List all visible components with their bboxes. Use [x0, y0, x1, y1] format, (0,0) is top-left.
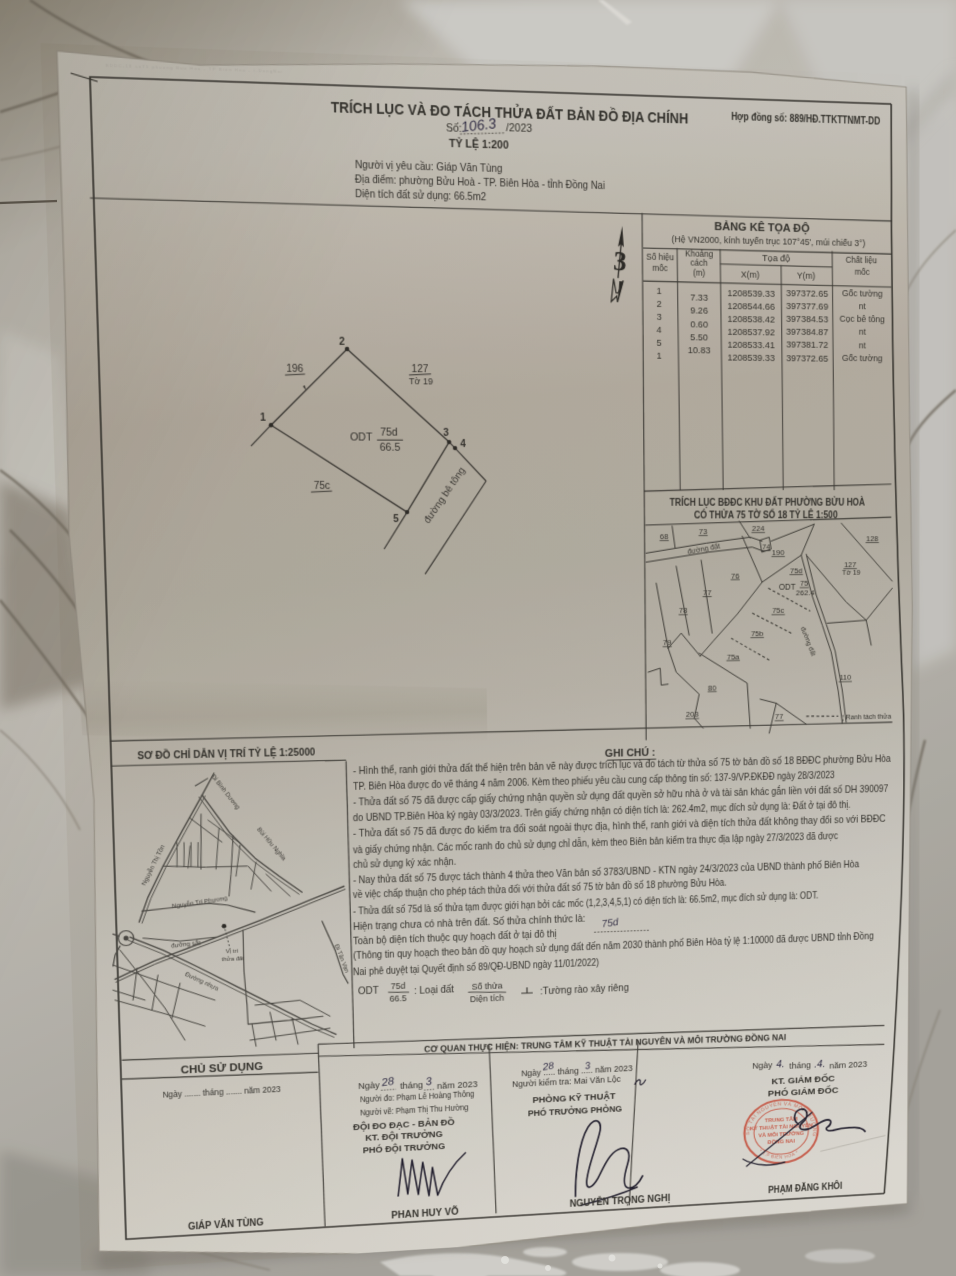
svg-text:5: 5	[657, 339, 662, 349]
svg-text:0.60: 0.60	[690, 320, 708, 330]
svg-text:4.: 4.	[776, 1058, 784, 1070]
svg-text:tháng: tháng	[789, 1061, 811, 1071]
svg-text:127: 127	[844, 560, 857, 569]
svg-text:Y(m): Y(m)	[797, 272, 815, 282]
svg-text:66.5: 66.5	[380, 443, 401, 454]
svg-text:3: 3	[657, 313, 662, 323]
svg-text:1208544.66: 1208544.66	[727, 301, 775, 312]
svg-text:TỶ LỆ 1:200: TỶ LỆ 1:200	[449, 137, 509, 151]
svg-text:mốc: mốc	[855, 268, 870, 277]
svg-text:397377.69: 397377.69	[786, 301, 828, 312]
svg-text:1208539.33: 1208539.33	[727, 288, 775, 299]
svg-text:1208533.41: 1208533.41	[727, 340, 775, 351]
svg-text:224: 224	[752, 524, 765, 533]
svg-text:ODT: ODT	[779, 583, 796, 592]
svg-text:Gốc tường: Gốc tường	[842, 354, 882, 364]
svg-text:4: 4	[657, 326, 662, 336]
svg-text:1208537.92: 1208537.92	[727, 327, 775, 338]
svg-text:397381.72: 397381.72	[786, 341, 828, 352]
svg-text:4: 4	[460, 439, 466, 450]
svg-text:mốc: mốc	[652, 263, 668, 273]
svg-text:Số:: Số:	[446, 122, 462, 134]
svg-text:66.5: 66.5	[389, 994, 406, 1004]
svg-text:75a: 75a	[727, 652, 740, 661]
svg-text:196: 196	[286, 363, 303, 375]
svg-text:1208538.42: 1208538.42	[727, 314, 775, 325]
svg-text:75b: 75b	[751, 629, 764, 638]
svg-text:190: 190	[772, 548, 785, 557]
svg-text:TRÍCH LỤC BĐĐC KHU ĐẤT PHƯỜNG: TRÍCH LỤC BĐĐC KHU ĐẤT PHƯỜNG BỬU HOÀ	[670, 497, 865, 509]
svg-text:397372.65: 397372.65	[786, 288, 829, 299]
svg-text:127: 127	[412, 364, 429, 375]
svg-text:.4.: .4.	[814, 1058, 825, 1070]
svg-text:Số thửa: Số thửa	[472, 982, 503, 993]
svg-text:nt: nt	[859, 341, 866, 351]
svg-text:Tờ 19: Tờ 19	[842, 569, 861, 577]
svg-text:Ngày: Ngày	[752, 1061, 773, 1071]
svg-text:397384.53: 397384.53	[786, 314, 828, 325]
svg-text:110: 110	[839, 673, 851, 682]
svg-text:2: 2	[657, 300, 662, 310]
svg-text:76: 76	[731, 571, 740, 580]
svg-text:BẢNG KÊ TỌA ĐỘ: BẢNG KÊ TỌA ĐỘ	[714, 219, 810, 235]
svg-text:75c: 75c	[314, 481, 331, 492]
svg-text:128: 128	[866, 534, 878, 543]
svg-text:GHI CHÚ :: GHI CHÚ :	[605, 745, 656, 759]
svg-text:CÓ THỬA 75 TỜ SỐ 18 TỶ LỆ 1:50: CÓ THỬA 75 TỜ SỐ 18 TỶ LỆ 1:500	[694, 508, 838, 521]
svg-text:74: 74	[762, 543, 770, 551]
svg-text:2: 2	[339, 337, 345, 348]
svg-text:/2023: /2023	[506, 122, 532, 134]
svg-text:: Loại đất: : Loại đất	[414, 985, 454, 997]
svg-text:X(m): X(m)	[741, 270, 760, 280]
svg-text:nt: nt	[859, 328, 866, 338]
svg-text:203: 203	[686, 710, 699, 719]
svg-text:3: 3	[443, 428, 449, 439]
svg-text:9.26: 9.26	[690, 307, 708, 317]
svg-text:Tọa độ: Tọa độ	[762, 253, 790, 264]
svg-text:Cọc bê tông: Cọc bê tông	[840, 315, 885, 326]
svg-text:tháng: tháng	[400, 1081, 423, 1092]
svg-text:ODT: ODT	[350, 432, 373, 443]
svg-text:Chất liệu: Chất liệu	[846, 255, 877, 265]
svg-text:28: 28	[541, 1061, 555, 1073]
svg-text:1: 1	[657, 287, 662, 297]
svg-text:28: 28	[380, 1075, 395, 1089]
svg-text:cách: cách	[690, 259, 707, 269]
svg-text:¦ Ranh tách thửa: ¦ Ranh tách thửa	[842, 712, 891, 721]
svg-text:262.4: 262.4	[796, 588, 815, 597]
svg-text:3: 3	[613, 246, 628, 277]
svg-text:Gốc tường: Gốc tường	[842, 288, 883, 299]
svg-text:ODT: ODT	[358, 985, 379, 997]
svg-text:1208539.33: 1208539.33	[727, 353, 775, 364]
svg-text:7.33: 7.33	[690, 294, 708, 304]
svg-text:75d: 75d	[391, 982, 406, 992]
svg-text:Số hiệu: Số hiệu	[646, 252, 674, 262]
svg-text:73: 73	[699, 527, 708, 536]
svg-text:10.83: 10.83	[688, 346, 711, 356]
svg-text:Vị trí: Vị trí	[226, 948, 239, 955]
svg-text:68: 68	[660, 532, 669, 541]
svg-text:75c: 75c	[772, 606, 785, 615]
svg-text:(m): (m)	[693, 269, 705, 278]
svg-text:năm 2023: năm 2023	[829, 1060, 867, 1071]
svg-text:1: 1	[657, 352, 662, 362]
svg-text:77: 77	[775, 712, 783, 721]
svg-text:397372.65: 397372.65	[786, 354, 828, 364]
svg-text:Diện tích: Diện tích	[470, 994, 504, 1005]
svg-text:nt: nt	[859, 302, 866, 312]
svg-text:Tờ 19: Tờ 19	[409, 376, 433, 387]
svg-text:5.50: 5.50	[690, 333, 708, 343]
svg-text:Ngày: Ngày	[358, 1081, 381, 1092]
svg-text:77: 77	[703, 588, 712, 597]
svg-text:80: 80	[708, 683, 717, 692]
svg-text:75d: 75d	[380, 428, 398, 439]
svg-text:397384.87: 397384.87	[786, 328, 828, 339]
svg-text:75: 75	[800, 579, 808, 588]
svg-text:1: 1	[260, 413, 266, 424]
svg-text:5: 5	[393, 514, 399, 525]
svg-text:79: 79	[663, 638, 672, 647]
svg-text:78: 78	[679, 606, 688, 615]
svg-text:75d: 75d	[790, 566, 803, 575]
